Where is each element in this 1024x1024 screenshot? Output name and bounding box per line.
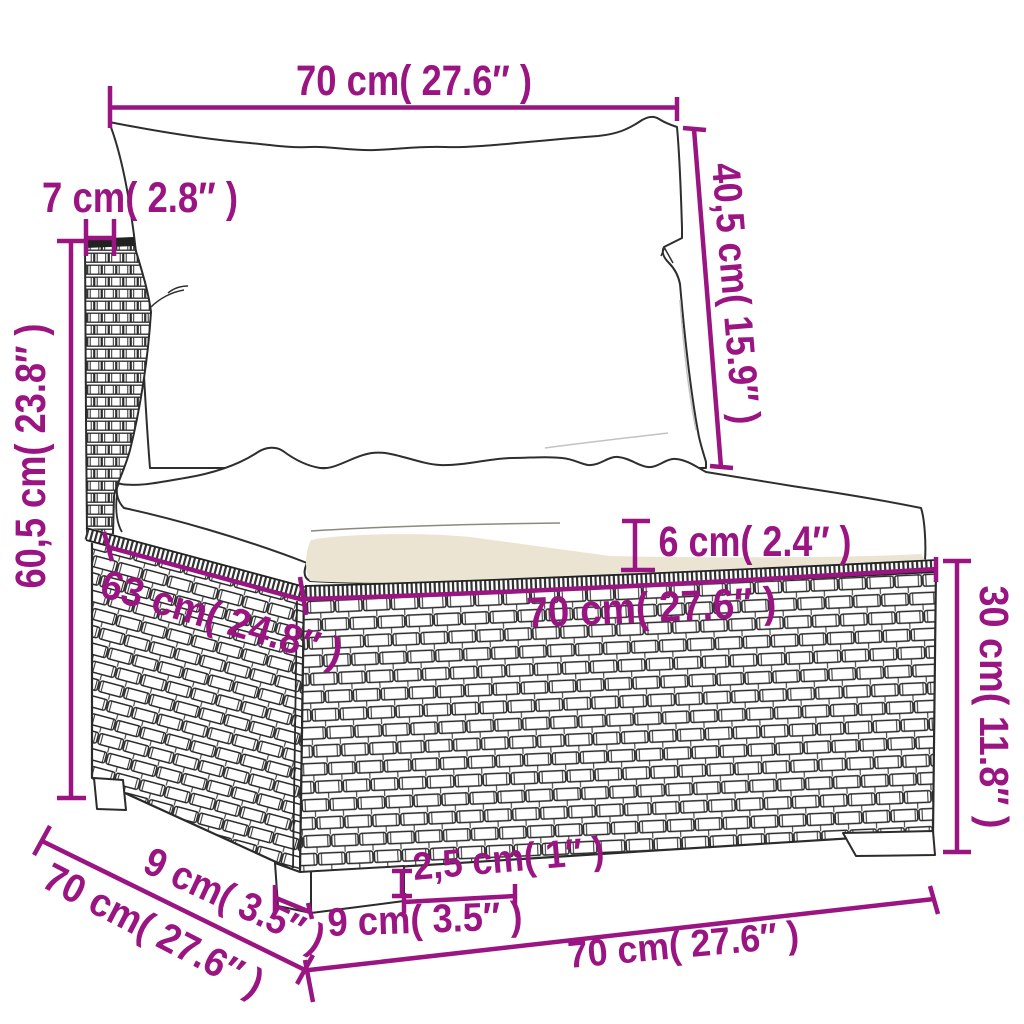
svg-text:70 cm( 27.6″ ): 70 cm( 27.6″ ) xyxy=(296,57,532,105)
svg-text:6 cm( 2.4″ ): 6 cm( 2.4″ ) xyxy=(659,518,852,566)
svg-text:7 cm( 2.8″ ): 7 cm( 2.8″ ) xyxy=(42,174,238,222)
svg-text:30 cm( 11.8″ ): 30 cm( 11.8″ ) xyxy=(971,586,1017,829)
svg-text:60,5 cm( 23.8″ ): 60,5 cm( 23.8″ ) xyxy=(7,324,55,589)
svg-text:9 cm( 3.5″ ): 9 cm( 3.5″ ) xyxy=(327,894,523,945)
